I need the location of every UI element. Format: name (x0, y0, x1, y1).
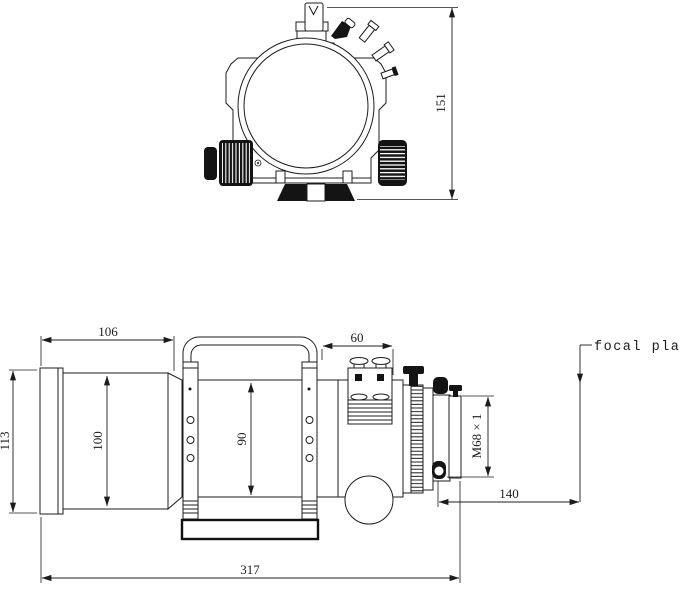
dim-text-151: 151 (433, 93, 448, 113)
focuser-knurled-ring (411, 385, 423, 493)
dim-text-106: 106 (98, 324, 118, 339)
finder-shoe-thumbscrew-right (372, 358, 390, 365)
dovetail-foot-right (325, 184, 355, 201)
rear-ring-screw (449, 385, 462, 397)
foot-bracket-left (276, 171, 285, 183)
focuser-flange (403, 385, 411, 493)
shell-screw-hole-center (257, 162, 259, 164)
front-carry-handle (305, 3, 323, 31)
rim-thumbscrew-1 (358, 20, 379, 43)
focal-plane-marker: focal plane (580, 340, 680, 502)
technical-drawing-page: 151 (0, 0, 680, 600)
dew-shield-body (63, 373, 168, 509)
side-view: 106 60 113 100 90 M68 × 1 (0, 324, 680, 583)
dovetail-foot-left (277, 184, 307, 201)
dim-text-113: 113 (0, 431, 12, 450)
lens-cell-outer-ring (238, 38, 374, 174)
rear-thread-ring (449, 396, 461, 478)
dew-shield-taper (168, 373, 182, 509)
dim-113: 113 (0, 370, 37, 513)
dovetail-plate (182, 520, 318, 539)
rim-thumbscrew-2 (371, 42, 394, 62)
tube-ring-rear (302, 362, 317, 519)
finder-shoe-thumbscrew-left (350, 358, 368, 365)
foot-bracket-right (343, 171, 352, 183)
focus-knob-side (345, 476, 393, 524)
finder-shoe (348, 358, 392, 425)
dovetail-foot-center (307, 184, 325, 201)
dew-shield-trim-ring (40, 368, 63, 514)
front-view: 151 (204, 3, 458, 201)
drawtube-lock-knob (433, 377, 448, 394)
dim-140: 140 (438, 481, 579, 507)
tube-ring-front (183, 362, 198, 519)
dim-106: 106 (41, 324, 174, 371)
focuser-body-band (423, 388, 433, 490)
left-focus-knob (219, 140, 253, 186)
dim-text-90: 90 (234, 433, 249, 446)
left-knob-end-cap (204, 147, 217, 180)
dim-text-317: 317 (240, 562, 260, 577)
right-focus-knob (378, 140, 407, 186)
focuser-tension-screw (403, 366, 424, 386)
dim-text-100: 100 (90, 431, 105, 451)
dim-text-m68: M68 × 1 (469, 414, 484, 459)
dim-text-140: 140 (499, 486, 519, 501)
telescope-technical-drawing: 151 (0, 0, 680, 600)
focal-plane-label: focal plane (594, 340, 680, 355)
dim-text-60: 60 (351, 330, 364, 345)
drawtube-lower-lever (432, 461, 446, 479)
